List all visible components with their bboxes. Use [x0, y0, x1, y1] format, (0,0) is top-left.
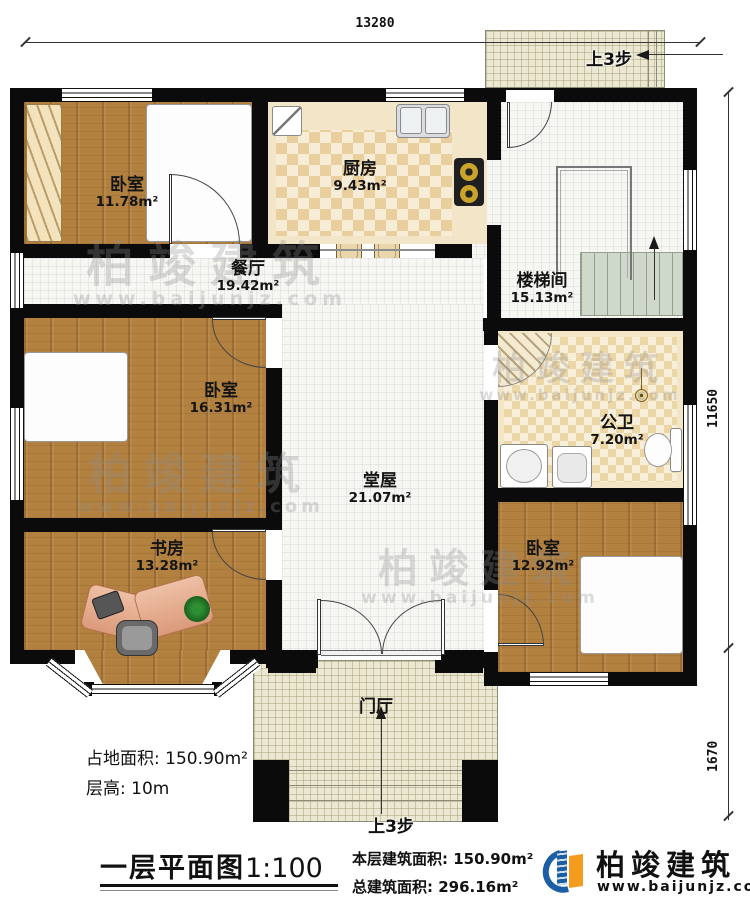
wall-segment: [435, 244, 472, 258]
room-name: 堂屋: [325, 472, 435, 491]
wardrobe: [26, 104, 62, 242]
wall-segment: [240, 244, 268, 258]
stair-arrow-line: [654, 246, 655, 300]
sink-bowl: [506, 449, 542, 483]
steps-up-label-top: 上3步: [560, 45, 632, 70]
room-area: 21.07m²: [325, 491, 435, 506]
room-name: 卧室: [166, 382, 276, 401]
room-area: 11.78m²: [72, 195, 182, 210]
wall-segment: [10, 650, 75, 664]
entry-door-leaf: [441, 599, 445, 655]
wall-left: [10, 88, 24, 664]
kitchen-passthrough: [320, 249, 435, 251]
porch-edge-lines: [648, 31, 657, 87]
window: [386, 88, 464, 102]
dimension-line-top: [25, 42, 700, 43]
plant: [184, 596, 210, 622]
wall-segment: [435, 660, 483, 673]
window: [530, 672, 608, 686]
dimension-top-width: 13280: [330, 16, 420, 31]
total-area: 总建筑面积: 296.16m²: [352, 876, 518, 897]
porch-pillar: [462, 760, 498, 822]
floor-plan: 13280 上3步: [0, 0, 750, 906]
steps-arrow-top-icon: [636, 50, 649, 60]
stair-arrow-icon: [649, 236, 659, 249]
room-area: 7.20m²: [572, 433, 662, 448]
room-area: 15.13m²: [492, 291, 592, 306]
dimension-porch-height: 1670: [706, 702, 721, 772]
room-label-bedroom1: 卧室 11.78m²: [72, 176, 182, 210]
logo-building-blue: [557, 850, 567, 885]
door-leaf: [498, 643, 544, 646]
door-opening: [266, 530, 282, 580]
room-name: 楼梯间: [492, 272, 592, 291]
wall-bathroom-bottom: [484, 488, 697, 502]
window: [10, 253, 24, 308]
sink-basin: [425, 107, 447, 134]
floor-area-label: 本层建筑面积:: [352, 850, 448, 868]
wall-segment: [484, 652, 498, 686]
door-leaf: [212, 317, 266, 320]
room-label-bedroom3: 卧室 12.92m²: [488, 540, 598, 574]
dimension-right-height: 11650: [706, 318, 721, 428]
room-name: 卧室: [488, 540, 598, 559]
entry-door-leaf: [317, 599, 321, 655]
light-cord: [641, 368, 642, 390]
floor-height: 层高: 10m: [86, 774, 169, 799]
drawing-scale: 1:100: [245, 853, 323, 884]
site-area-value: 150.90m²: [165, 749, 248, 769]
entry-arrow-line: [381, 716, 382, 814]
porch-pillar: [253, 760, 289, 822]
door-opening: [170, 244, 240, 258]
room-label-bedroom2: 卧室 16.31m²: [166, 382, 276, 416]
wall-segment: [10, 244, 170, 258]
room-label-stairwell: 楼梯间 15.13m²: [492, 272, 592, 306]
sink-basin: [400, 107, 422, 134]
kitchen-cabinet: [272, 106, 302, 136]
room-name: 公卫: [572, 414, 662, 433]
washer-drum: [557, 453, 587, 483]
wall-bedroom1-kitchen: [252, 88, 268, 244]
drawing-title-text: 一层平面图: [100, 853, 245, 884]
door-opening: [484, 590, 498, 652]
company-logo-icon: [543, 845, 589, 897]
window: [62, 88, 152, 102]
room-area: 19.42m²: [198, 279, 298, 294]
door-leaf: [212, 529, 266, 532]
wall-segment: [266, 580, 282, 650]
room-name: 餐厅: [198, 260, 298, 279]
room-area: 13.28m²: [112, 559, 222, 574]
site-area-label: 占地面积:: [86, 749, 160, 769]
floor-height-value: 10m: [131, 779, 169, 799]
wall-stairwell-bottom: [483, 318, 697, 331]
room-label-kitchen: 厨房 9.43m²: [312, 160, 408, 194]
room-area: 9.43m²: [312, 179, 408, 194]
title-underline: [100, 884, 338, 887]
steps-up-label-bottom: 上3步: [346, 812, 436, 837]
dimension-line-right: [728, 92, 729, 820]
room-label-study: 书房 13.28m²: [112, 540, 222, 574]
window: [683, 405, 697, 525]
door-opening: [506, 90, 554, 102]
company-name: 柏竣建筑: [596, 842, 736, 884]
room-name: 书房: [112, 540, 222, 559]
window: [10, 408, 24, 500]
ceiling-light: [635, 389, 648, 402]
wall-segment: [268, 244, 320, 258]
porch-step: [289, 770, 462, 771]
floor-height-label: 层高:: [86, 779, 126, 799]
room-label-hall: 堂屋 21.07m²: [325, 472, 435, 506]
room-name: 厨房: [312, 160, 408, 179]
porch-step: [289, 800, 462, 801]
chair-seat: [122, 626, 152, 650]
steps-arrow-line-top: [649, 54, 723, 55]
floor-area: 本层建筑面积: 150.90m²: [352, 848, 533, 869]
title-underline-thin: [100, 890, 338, 891]
room-area: 12.92m²: [488, 559, 598, 574]
total-area-label: 总建筑面积:: [352, 878, 433, 896]
bay-window: [45, 658, 93, 699]
logo-building-orange: [569, 854, 583, 888]
total-area-value: 296.16m²: [438, 878, 518, 896]
wall-segment: [484, 400, 498, 488]
door-opening: [484, 345, 498, 400]
room-label-dining: 餐厅 19.42m²: [198, 260, 298, 294]
wall-segment: [484, 331, 498, 345]
site-area: 占地面积: 150.90m²: [86, 744, 248, 769]
porch-step: [289, 785, 462, 786]
stove-burner: [460, 163, 478, 181]
wall-segment: [268, 660, 316, 673]
floor-area-value: 150.90m²: [453, 850, 533, 868]
door-leaf: [507, 102, 510, 148]
stair-railing: [556, 166, 632, 280]
drawing-title: 一层平面图1:100: [100, 846, 323, 885]
stove-burner: [460, 185, 478, 203]
entry-arrow-icon: [376, 706, 386, 719]
company-website: www.baijunjz.com: [597, 879, 750, 895]
wall-bedroom2-top: [10, 304, 282, 318]
room-name: 卧室: [72, 176, 182, 195]
door-opening: [266, 318, 282, 368]
window: [683, 170, 697, 250]
bed: [24, 352, 128, 442]
room-label-bathroom: 公卫 7.20m²: [572, 414, 662, 448]
bay-window: [92, 684, 214, 696]
room-area: 16.31m²: [166, 401, 276, 416]
wall-segment: [487, 102, 501, 160]
